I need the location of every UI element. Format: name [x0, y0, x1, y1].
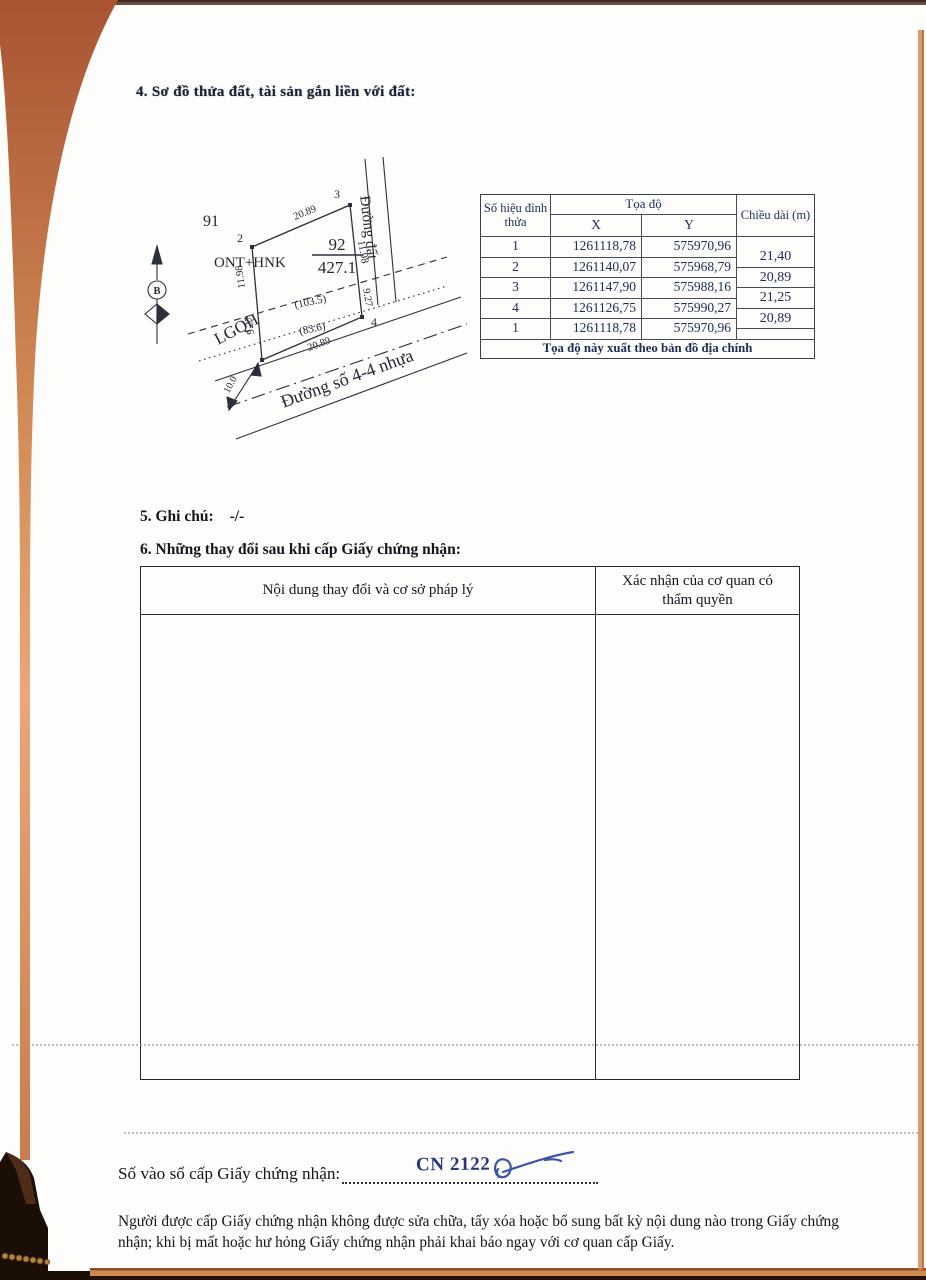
- plot-number: 92: [329, 235, 346, 254]
- table-cell-length: 20,89: [737, 268, 814, 289]
- table-cell-vertex: 1: [481, 237, 551, 258]
- binding-ornament: [2, 1253, 50, 1265]
- col-header-vertex: Số hiệu đỉnh thửa: [481, 195, 551, 237]
- registry-number-handwritten: CN 2122: [416, 1154, 491, 1177]
- road-name-bottom: Đường số 4-4 nhựa: [278, 345, 416, 412]
- plot-area: 427.1: [318, 258, 356, 277]
- parcel-vertices: [250, 203, 364, 362]
- sub-area: (103.5): [293, 293, 327, 311]
- scan-corner-block: [0, 1152, 90, 1280]
- section5-note: 5. Ghi chú: -/-: [140, 508, 244, 526]
- scan-top-edge: [108, 0, 926, 5]
- planning-label: LGQH: [211, 310, 262, 349]
- table-cell-length: 21,40: [737, 247, 814, 268]
- table-cell-length: 20,89: [737, 309, 814, 330]
- section5-value: -/-: [230, 508, 245, 526]
- scanned-certificate-page: 4. Sơ đồ thửa đất, tài sản gắn liền với …: [0, 0, 926, 1280]
- changes-col-content: Nội dung thay đổi và cơ sở pháp lý: [141, 567, 596, 1079]
- section6-title: 6. Những thay đổi sau khi cấp Giấy chứng…: [140, 541, 461, 559]
- col-header-x: X: [551, 215, 642, 237]
- table-cell-x: 1261140,07: [551, 258, 642, 279]
- section4-title: 4. Sơ đồ thửa đất, tài sản gắn liền với …: [136, 84, 416, 101]
- table-cell-vertex: 3: [481, 278, 551, 299]
- table-cell-x: 1261118,78: [551, 237, 642, 258]
- changes-table: Nội dung thay đổi và cơ sở pháp lý Xác n…: [140, 566, 800, 1080]
- vertex-label: 4: [371, 315, 377, 329]
- signature: [485, 1145, 580, 1191]
- changes-col-confirmation: Xác nhận của cơ quan có thẩm quyền: [596, 567, 799, 1079]
- footer-warning-note: Người được cấp Giấy chứng nhận không đượ…: [118, 1211, 845, 1254]
- table-cell-x: 1261147,90: [551, 278, 642, 299]
- col-header-coords: Tọa độ: [551, 195, 737, 215]
- scan-artifact-line: [124, 1132, 918, 1134]
- table-cell-length: 21,25: [737, 288, 814, 309]
- plot-diagram: B 91 2 3 4 1 ONT+HNK 92 427.1 20.89 11.9…: [115, 138, 480, 443]
- table-cell-vertex: 2: [481, 258, 551, 279]
- table-cell-vertex: 1: [481, 319, 551, 340]
- vertex-label: 1: [253, 363, 259, 377]
- table-footer-note: Tọa độ này xuất theo bản đồ địa chính: [481, 340, 814, 358]
- changes-col2-header: Xác nhận của cơ quan có thẩm quyền: [596, 567, 799, 615]
- scan-artifact-line: [12, 1044, 918, 1046]
- col-header-length: Chiều dài (m): [737, 195, 814, 237]
- table-cell-y: 575988,16: [642, 278, 737, 299]
- table-cell-x: 1261118,78: [551, 319, 642, 340]
- edge-length: 9.27: [360, 288, 374, 308]
- edge-length: 20.89: [306, 335, 332, 353]
- col-header-y: Y: [642, 215, 737, 237]
- scan-bottom-edge: [90, 1268, 926, 1280]
- vertex-label: 2: [237, 231, 243, 245]
- dirt-road-edge: [383, 157, 396, 302]
- registry-label: Số vào sổ cấp Giấy chứng nhận:: [118, 1164, 340, 1184]
- table-cell-y: 575990,27: [642, 299, 737, 320]
- table-cell-y: 575970,96: [642, 319, 737, 340]
- length-column: 21,40 20,89 21,25 20,89: [737, 237, 814, 340]
- adjacent-plot-label: 91: [203, 213, 219, 230]
- table-cell-x: 1261126,75: [551, 299, 642, 320]
- land-use-code: ONT+HNK: [214, 255, 286, 271]
- sub-area: (83.6): [298, 320, 327, 337]
- changes-col1-header: Nội dung thay đổi và cơ sở pháp lý: [141, 567, 595, 615]
- scan-left-band: [0, 0, 118, 1160]
- section5-label: 5. Ghi chú:: [140, 508, 214, 526]
- vertex-label: 3: [334, 187, 340, 201]
- scan-right-edge: [918, 30, 923, 1270]
- table-cell-y: 575968,79: [642, 258, 737, 279]
- table-cell-y: 575970,96: [642, 237, 737, 258]
- coordinate-table: Số hiệu đỉnh thửa Tọa độ X Y Chiều dài (…: [480, 194, 815, 359]
- table-cell-vertex: 4: [481, 299, 551, 320]
- north-label: B: [153, 286, 160, 297]
